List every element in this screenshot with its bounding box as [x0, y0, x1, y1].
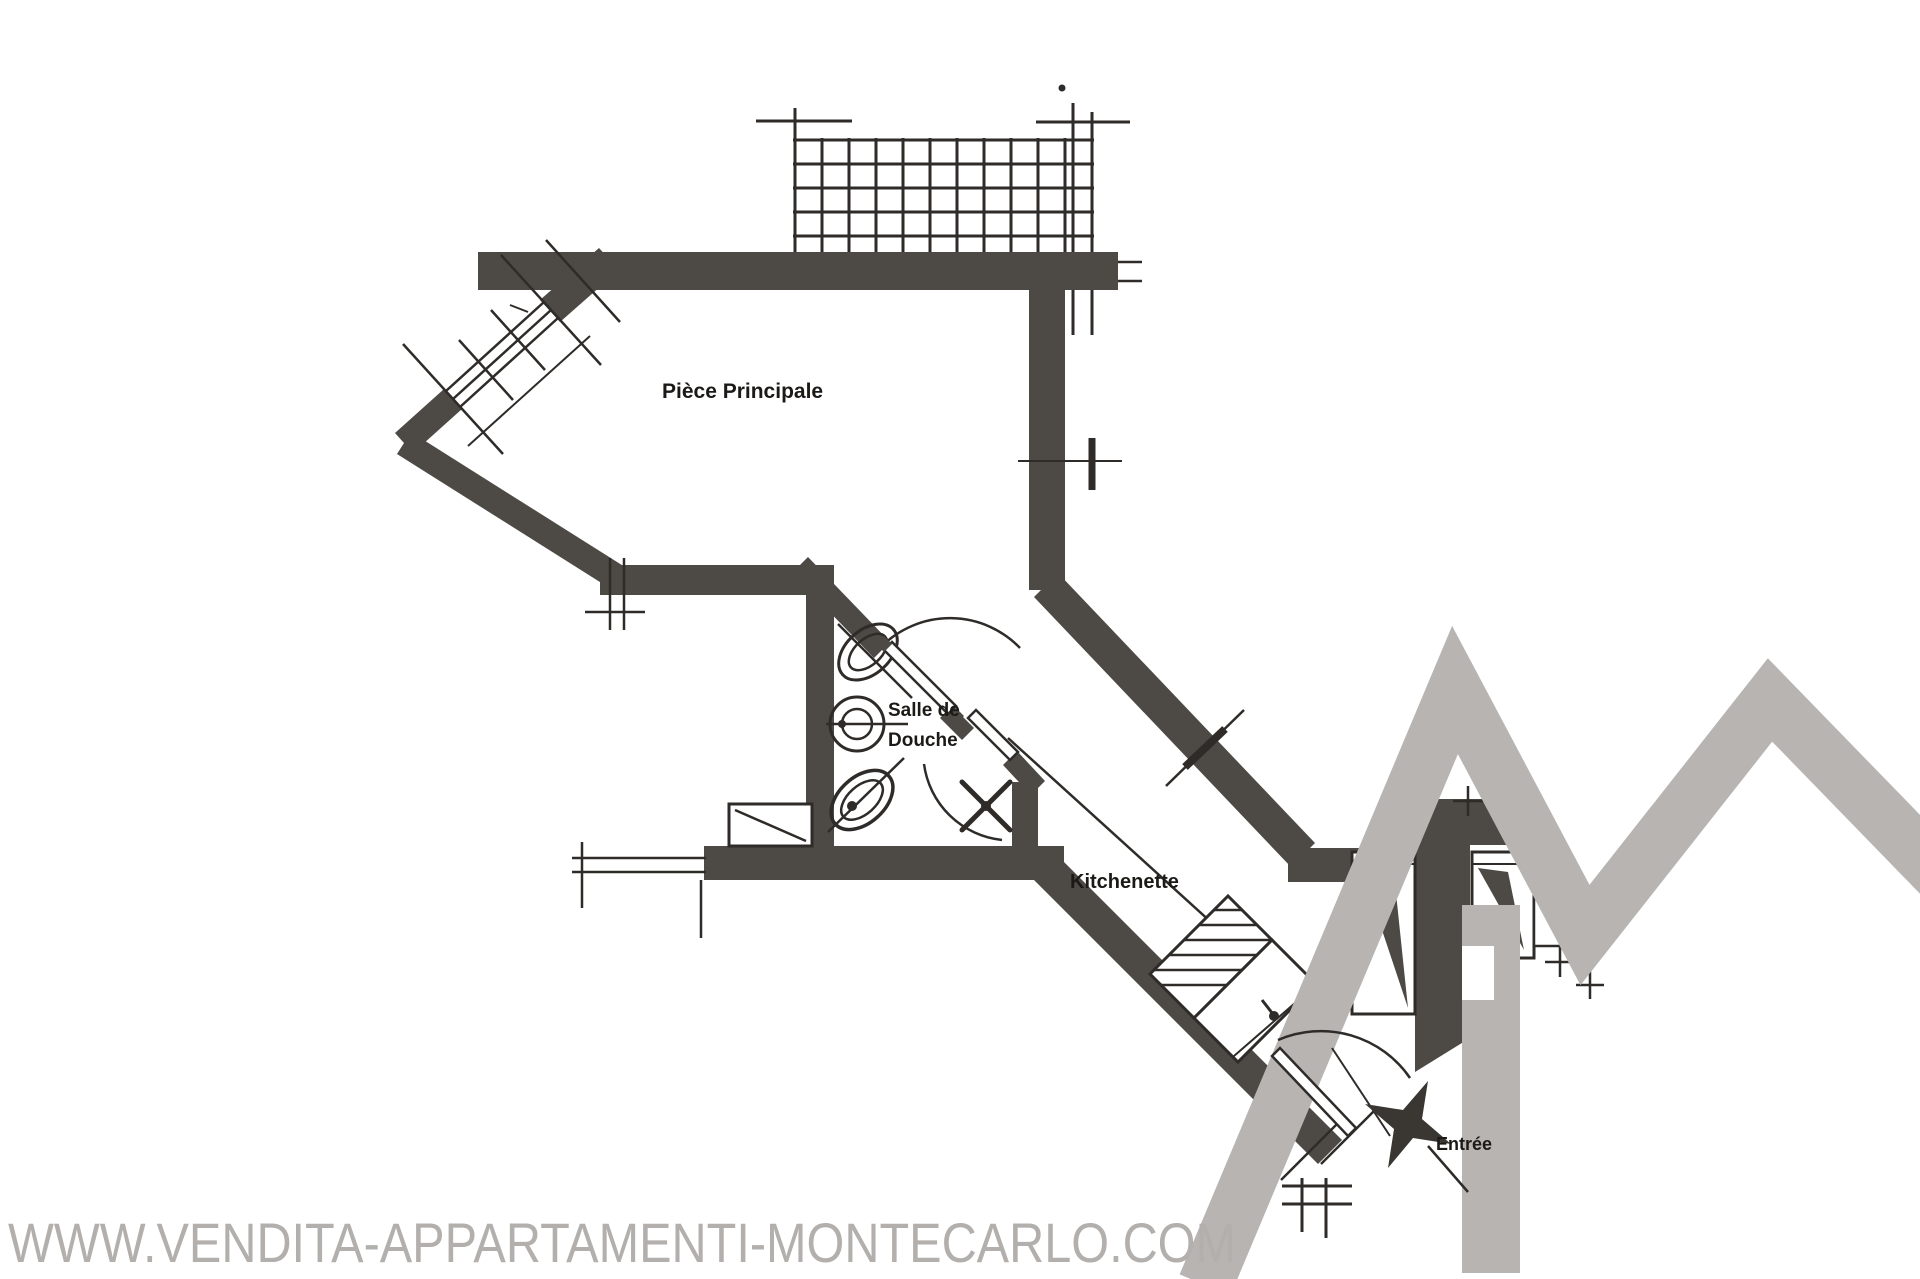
- room-labels: Pièce Principale Salle de Douche Kitchen…: [662, 380, 1492, 1154]
- agency-logo: [1205, 690, 1920, 1279]
- wall-main-room-right: [1029, 290, 1065, 590]
- logo-roofline: [1205, 690, 1920, 1279]
- logo-bar-notch: [1462, 946, 1494, 1000]
- wall-shower-corner-vert: [1012, 782, 1038, 846]
- wall-bottom: [704, 846, 1064, 880]
- wall-closet-stem: [1415, 845, 1470, 1072]
- label-entrance: Entrée: [1436, 1134, 1492, 1154]
- doors: [876, 618, 1316, 1062]
- wall-horizontal-left: [600, 565, 812, 595]
- label-shower-line2: Douche: [888, 730, 958, 751]
- window-tick: [459, 340, 513, 400]
- shower-drain-symbol: [962, 782, 1010, 830]
- wall-diag-lower-left: [397, 432, 625, 589]
- entrance-star-marker: [1365, 1081, 1451, 1168]
- step-shelf: [729, 804, 812, 846]
- window-tick: [491, 310, 545, 370]
- floor-plan-page: Pièce Principale Salle de Douche Kitchen…: [0, 0, 1920, 1279]
- balcony-grid: [756, 85, 1130, 336]
- label-main-room: Pièce Principale: [662, 380, 823, 403]
- plan-dot: [1059, 85, 1066, 92]
- label-kitchenette: Kitchenette: [1070, 871, 1179, 893]
- wall-corridor-upper: [1034, 573, 1315, 867]
- watermark-url: WWW.VENDITA-APPARTAMENTI-MONTECARLO.COM: [8, 1211, 1236, 1274]
- label-shower-line1: Salle de: [888, 700, 960, 721]
